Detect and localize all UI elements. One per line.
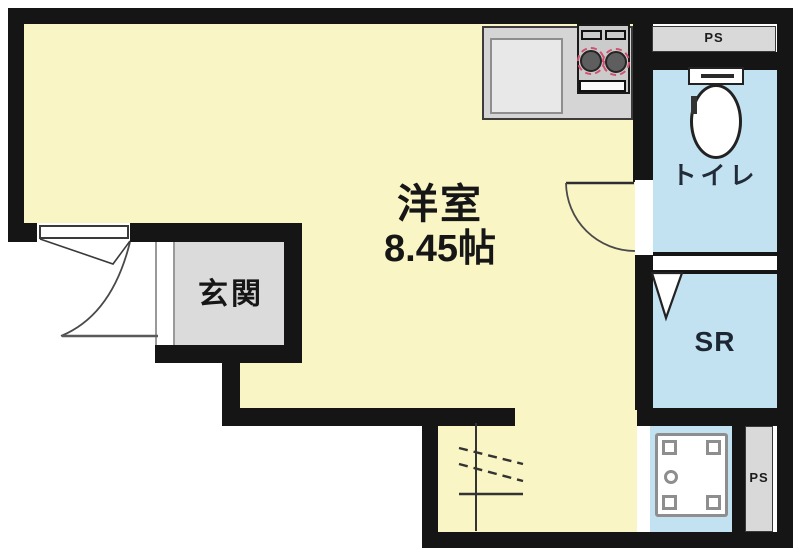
main-room-alcove xyxy=(438,408,637,532)
wall-niche-right xyxy=(732,426,745,532)
wall-entrance-top xyxy=(130,223,302,242)
washer-pan-drain-icon xyxy=(664,470,678,484)
wall-kitchen-toilet xyxy=(633,8,653,182)
washer-pan-tab-top-left xyxy=(662,440,677,455)
toilet-bowl xyxy=(690,84,742,159)
pipe-space-bottom-label: PS xyxy=(745,471,773,486)
entrance-door-arc xyxy=(61,242,130,336)
wall-bottom-left-corner xyxy=(8,223,37,242)
wall-stub-horizontal xyxy=(222,408,515,426)
main-room-size: 8.45帖 xyxy=(335,228,545,272)
kitchen-stove xyxy=(577,24,630,94)
wall-bottom xyxy=(422,532,793,548)
stove-grill xyxy=(579,80,626,92)
toilet-label: トイレ xyxy=(655,162,775,191)
floor-plan: 洋室 8.45帖 玄関 トイレ SR PS PS xyxy=(0,0,800,552)
service-room-label: SR xyxy=(653,326,777,358)
pipe-space-top-label: PS xyxy=(652,31,776,46)
washer-pan xyxy=(655,433,728,517)
wall-alcove-left xyxy=(422,408,438,548)
stove-burner-right-icon xyxy=(605,51,627,73)
wall-sr-bottom xyxy=(637,408,777,426)
main-room-area-below-entrance xyxy=(240,363,302,408)
wall-left xyxy=(8,8,24,242)
main-room-label: 洋室 8.45帖 xyxy=(335,181,545,272)
wall-sr-left xyxy=(635,255,653,410)
kitchen-sink xyxy=(490,38,563,114)
divider-toilet-sr-bottom-line xyxy=(650,270,777,274)
wall-right xyxy=(777,8,793,548)
stove-grate-right xyxy=(605,30,626,40)
washer-pan-tab-top-right xyxy=(706,440,721,455)
toilet-tank-lid-line xyxy=(701,74,734,78)
stove-burner-left-icon xyxy=(580,50,602,72)
entrance-door-leaf xyxy=(39,225,129,239)
toilet-door-opening xyxy=(635,180,653,255)
washer-pan-tab-bottom-right xyxy=(706,495,721,510)
washer-pan-tab-bottom-left xyxy=(662,495,677,510)
divider-toilet-sr-top-line xyxy=(650,252,777,256)
toilet-seat-hinge xyxy=(691,96,697,114)
wall-top xyxy=(8,8,793,24)
entrance-label: 玄関 xyxy=(181,278,281,313)
wall-entrance-bottom xyxy=(155,345,302,363)
main-room-name: 洋室 xyxy=(335,181,545,228)
stove-grate-left xyxy=(581,30,602,40)
entrance-step-strip xyxy=(155,242,175,345)
entrance-door-leaf-wedge xyxy=(40,239,130,264)
wall-entrance-right xyxy=(284,242,302,350)
